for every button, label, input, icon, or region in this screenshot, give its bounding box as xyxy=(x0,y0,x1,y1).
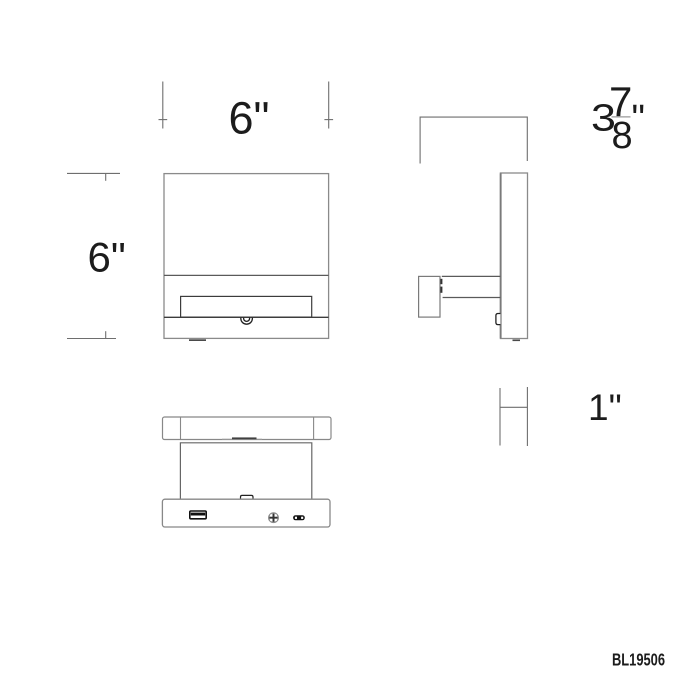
svg-text:8: 8 xyxy=(612,115,633,157)
svg-text:6": 6" xyxy=(88,233,126,280)
svg-text:1": 1" xyxy=(588,387,622,428)
svg-text:6": 6" xyxy=(229,93,270,144)
svg-text:BL19506: BL19506 xyxy=(612,650,665,670)
svg-text:": " xyxy=(632,98,646,140)
